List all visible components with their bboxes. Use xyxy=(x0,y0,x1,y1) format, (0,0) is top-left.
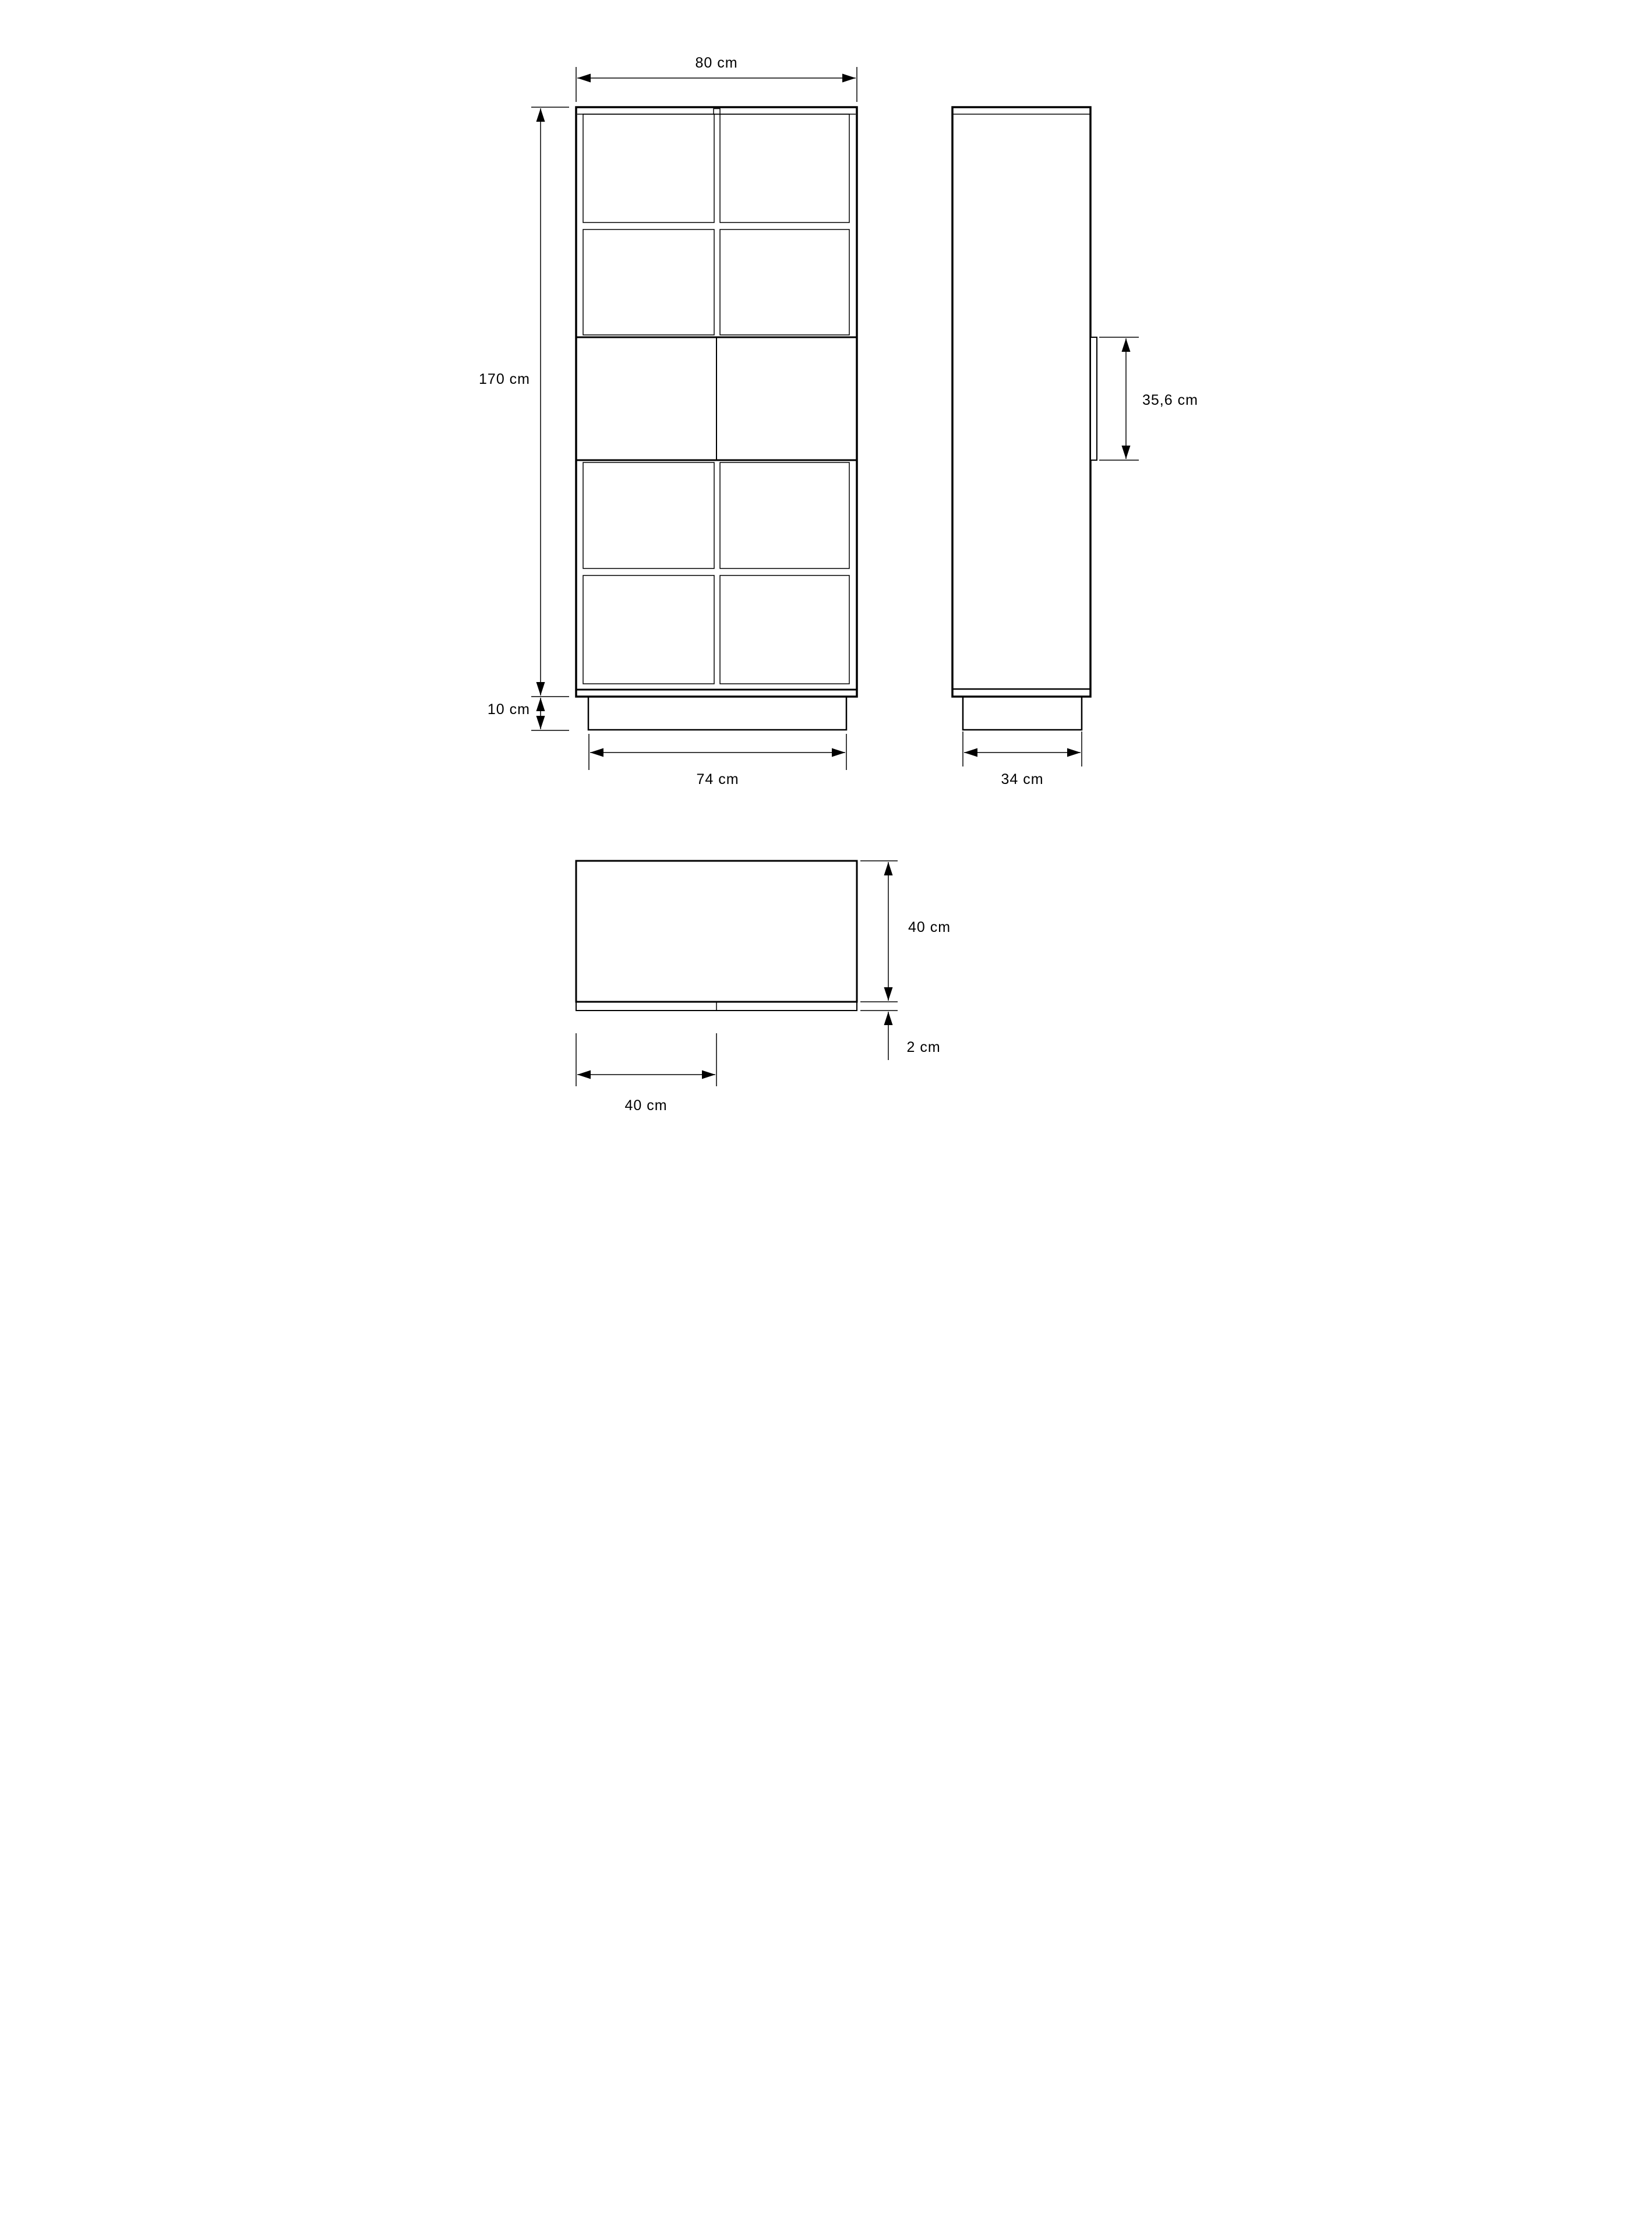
dimension-label-total-height: 170 cm xyxy=(479,371,530,387)
front-compartment-r3-right xyxy=(720,462,849,568)
dimension-label-plinth-height: 10 cm xyxy=(488,701,530,718)
side-view xyxy=(952,107,1097,730)
arrowhead-down xyxy=(1122,446,1131,459)
dimension-total-height: 170 cm xyxy=(479,107,569,697)
arrowhead-left xyxy=(590,748,603,757)
front-view xyxy=(576,107,857,730)
dimension-label-door-panel-height: 35,6 cm xyxy=(1142,392,1198,408)
arrowhead-up xyxy=(536,108,545,122)
dimension-label-door-thickness: 2 cm xyxy=(907,1039,941,1055)
arrowhead-up xyxy=(536,698,545,711)
front-center-divider-top xyxy=(714,109,720,115)
front-compartment-r2-right xyxy=(720,229,849,335)
dimension-label-total-width: 80 cm xyxy=(695,55,737,71)
arrowhead-down xyxy=(536,682,545,695)
dimension-door-thickness: 2 cm xyxy=(884,1012,941,1060)
front-compartment-r4-right xyxy=(720,575,849,684)
front-plinth xyxy=(588,697,846,730)
arrowhead-right xyxy=(1067,748,1081,757)
dimension-body-depth: 40 cm xyxy=(860,861,951,1011)
front-compartment-r1-right xyxy=(720,114,849,222)
arrowhead-left xyxy=(964,748,977,757)
front-compartment-r4-left xyxy=(583,575,714,684)
arrowhead-up xyxy=(884,1012,893,1025)
drawing-sheet: 80 cm 170 cm 10 cm 74 cm 35,6 cm xyxy=(413,0,1239,1118)
dimension-plinth-depth: 34 cm xyxy=(963,732,1082,787)
side-door-panel-profile xyxy=(1090,337,1097,460)
side-plinth xyxy=(963,697,1082,730)
arrowhead-down xyxy=(884,987,893,1001)
arrowhead-left xyxy=(577,74,591,83)
dimension-plinth-height: 10 cm xyxy=(488,698,569,730)
dimension-total-width: 80 cm xyxy=(576,55,857,102)
arrowhead-up xyxy=(1122,338,1131,352)
arrowhead-right xyxy=(832,748,845,757)
arrowhead-right xyxy=(842,74,856,83)
arrowhead-left xyxy=(577,1071,591,1079)
arrowhead-down xyxy=(536,716,545,729)
front-compartment-r2-left xyxy=(583,229,714,335)
dimension-label-plinth-width: 74 cm xyxy=(696,771,739,787)
dimension-label-plinth-depth: 34 cm xyxy=(1001,771,1043,787)
cabinet-technical-drawing: 80 cm 170 cm 10 cm 74 cm 35,6 cm xyxy=(413,0,1239,1118)
top-body-outline xyxy=(576,861,857,1002)
arrowhead-right xyxy=(702,1071,715,1079)
side-outer-frame xyxy=(952,107,1090,697)
dimension-door-panel-height: 35,6 cm xyxy=(1099,337,1198,460)
front-compartment-r1-left xyxy=(583,114,714,222)
dimension-door-width: 40 cm xyxy=(576,1033,716,1114)
dimension-label-body-depth: 40 cm xyxy=(908,919,951,935)
arrowhead-up xyxy=(884,862,893,875)
front-compartment-r3-left xyxy=(583,462,714,568)
dimension-label-door-width: 40 cm xyxy=(624,1097,667,1114)
dimension-plinth-width: 74 cm xyxy=(589,734,846,787)
top-view xyxy=(576,861,857,1011)
